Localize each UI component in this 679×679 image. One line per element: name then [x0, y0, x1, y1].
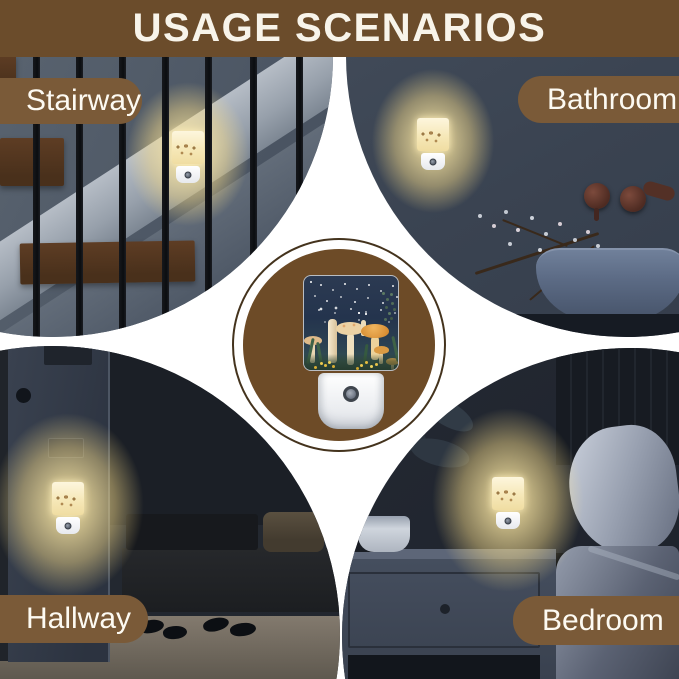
label-bedroom: Bedroom [513, 596, 679, 645]
label-hallway: Hallway [0, 595, 148, 643]
yellow-flowers [320, 362, 323, 365]
usage-scenarios-collage: USAGE SCENARIOS Stairway Bathroom Hallwa… [0, 0, 679, 679]
night-light-art-panel [492, 477, 524, 510]
faucet-spout [642, 180, 677, 202]
mushroom-cap [374, 346, 389, 354]
faucet-knob [620, 186, 646, 212]
night-light-art-panel [52, 482, 84, 515]
bench-cushion [263, 512, 324, 552]
mushroom-cap [361, 324, 389, 338]
header-banner: USAGE SCENARIOS [0, 0, 679, 57]
light-sensor [65, 522, 72, 529]
faucet-knob [584, 183, 610, 209]
railing-bar [205, 50, 212, 350]
page-title: USAGE SCENARIOS [133, 6, 547, 51]
night-light [492, 477, 524, 531]
label-stairway: Stairway [0, 78, 142, 124]
night-light-base [496, 512, 520, 529]
bathroom-counter [500, 314, 679, 344]
mushroom-cap [312, 304, 348, 321]
product-art-panel [303, 275, 399, 371]
eucalyptus-sprig [382, 292, 385, 295]
light-sensor [505, 517, 512, 524]
grass-band [304, 354, 399, 371]
night-light [172, 131, 204, 185]
night-light-base [421, 153, 445, 170]
label-stairway-text: Stairway [26, 84, 141, 118]
nightstand-shelf [348, 655, 540, 679]
product-base [318, 373, 384, 429]
mushroom-cap [353, 310, 374, 321]
light-sensor [185, 171, 192, 178]
wood-beam [0, 138, 64, 186]
plant-pot [358, 516, 410, 552]
faucet-lever [594, 208, 599, 221]
label-bathroom: Bathroom [518, 76, 679, 123]
night-light-base [176, 166, 200, 183]
door-vent [44, 341, 92, 365]
label-bedroom-text: Bedroom [542, 604, 664, 638]
light-sensor [430, 158, 437, 165]
light-sensor [343, 386, 359, 402]
blossom-branch [502, 219, 568, 247]
stars [310, 281, 312, 283]
mushroom-cap [336, 322, 364, 335]
product-medallion [243, 249, 435, 441]
night-light-art-panel [172, 131, 204, 164]
vessel-sink [536, 248, 679, 322]
product-medallion-ring [232, 238, 446, 452]
label-hallway-text: Hallway [26, 602, 131, 636]
night-light [52, 482, 84, 536]
railing-bar [162, 50, 169, 350]
night-light [417, 118, 449, 172]
label-bathroom-text: Bathroom [547, 83, 677, 117]
night-light-base [56, 517, 80, 534]
night-light-art-panel [417, 118, 449, 151]
